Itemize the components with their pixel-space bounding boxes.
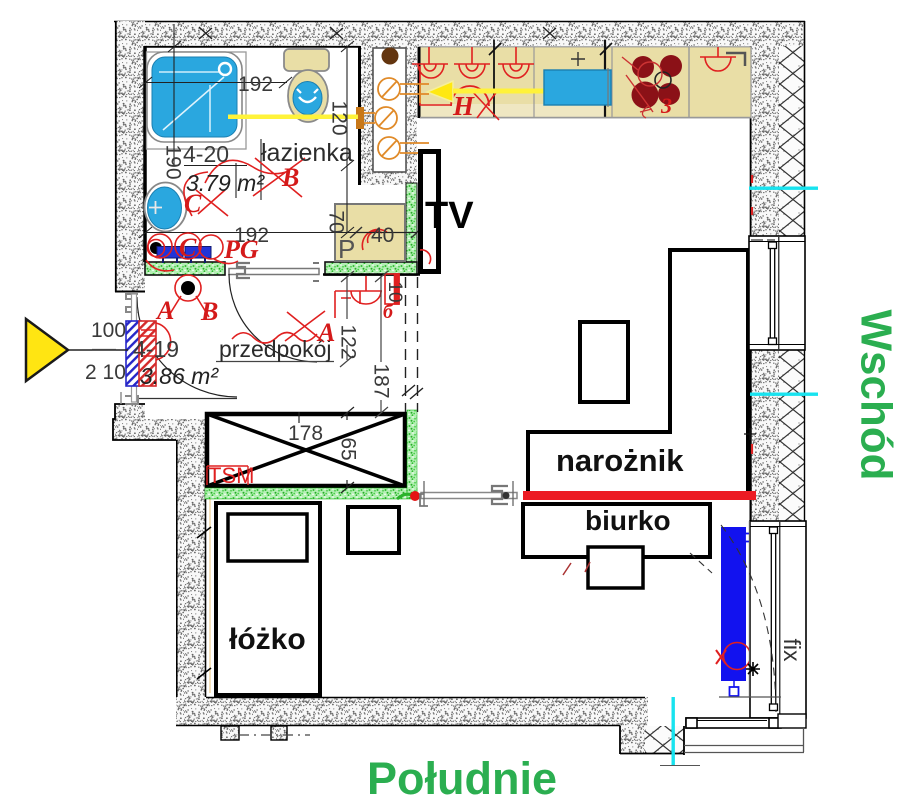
svg-text:C: C bbox=[184, 189, 202, 218]
svg-text:10: 10 bbox=[384, 281, 405, 302]
svg-text:122: 122 bbox=[336, 324, 359, 359]
svg-text:2 10: 2 10 bbox=[85, 361, 126, 384]
svg-text:P: P bbox=[338, 234, 355, 264]
svg-text:4-19: 4-19 bbox=[133, 336, 179, 362]
svg-text:łazienka: łazienka bbox=[261, 139, 353, 167]
svg-text:192: 192 bbox=[238, 73, 273, 96]
svg-text:120: 120 bbox=[327, 100, 350, 135]
svg-text:A: A bbox=[155, 296, 174, 325]
svg-text:H: H bbox=[452, 91, 475, 121]
svg-text:178: 178 bbox=[288, 422, 323, 445]
svg-text:łóżko: łóżko bbox=[229, 623, 306, 656]
svg-text:biurko: biurko bbox=[585, 505, 671, 536]
svg-text:б: б bbox=[383, 301, 394, 323]
svg-text:40: 40 bbox=[371, 224, 394, 247]
svg-text:fix: fix bbox=[779, 639, 805, 663]
svg-text:narożnik: narożnik bbox=[556, 443, 684, 478]
svg-text:B: B bbox=[200, 297, 218, 326]
svg-text:C: C bbox=[179, 233, 197, 262]
svg-text:przedpokój: przedpokój bbox=[219, 336, 332, 362]
svg-text:187: 187 bbox=[369, 363, 392, 398]
svg-text:3.86 m²: 3.86 m² bbox=[140, 363, 219, 389]
svg-text:3: 3 bbox=[660, 93, 672, 118]
svg-text:B: B bbox=[281, 163, 299, 192]
svg-text:4-20: 4-20 bbox=[183, 141, 229, 167]
svg-text:PG: PG bbox=[223, 235, 259, 264]
svg-text:70: 70 bbox=[324, 210, 347, 233]
svg-text:65: 65 bbox=[336, 437, 359, 460]
svg-text:Południe: Południe bbox=[367, 753, 557, 804]
svg-text:190: 190 bbox=[161, 144, 184, 179]
svg-text:100: 100 bbox=[91, 319, 126, 342]
svg-text:TV: TV bbox=[425, 195, 474, 237]
svg-text:A: A bbox=[316, 318, 335, 347]
svg-text:Wschód: Wschód bbox=[851, 309, 900, 480]
